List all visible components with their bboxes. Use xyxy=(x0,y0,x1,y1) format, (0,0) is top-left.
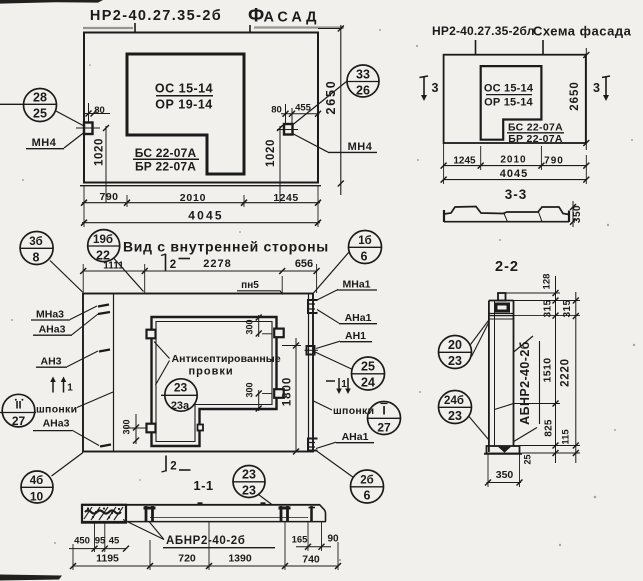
svg-text:1020: 1020 xyxy=(94,138,106,166)
svg-text:АН1: АН1 xyxy=(345,330,366,342)
svg-text:20: 20 xyxy=(448,338,462,352)
svg-text:23: 23 xyxy=(242,484,256,498)
svg-text:ОС 15-14: ОС 15-14 xyxy=(155,82,213,96)
svg-text:МНа1: МНа1 xyxy=(342,279,370,291)
svg-text:АНа3: АНа3 xyxy=(43,418,70,430)
svg-text:2б: 2б xyxy=(360,475,374,487)
svg-text:23: 23 xyxy=(448,354,462,368)
svg-text:23: 23 xyxy=(174,381,188,395)
svg-text:1111: 1111 xyxy=(103,261,124,272)
svg-text:АН3: АН3 xyxy=(40,356,61,368)
svg-text:6: 6 xyxy=(361,250,368,264)
svg-text:115: 115 xyxy=(561,429,572,445)
svg-text:АБНР2-40-2б: АБНР2-40-2б xyxy=(166,535,246,547)
svg-text:10: 10 xyxy=(30,490,44,504)
svg-text:I: I xyxy=(382,404,385,418)
svg-text:2010: 2010 xyxy=(180,192,207,204)
svg-text:6: 6 xyxy=(364,489,371,503)
svg-text:28: 28 xyxy=(33,91,47,105)
svg-text:АСАД: АСАД xyxy=(264,10,321,26)
svg-text:300: 300 xyxy=(245,319,255,334)
svg-text:3б: 3б xyxy=(29,236,43,248)
svg-text:2: 2 xyxy=(170,259,176,271)
svg-text:Ф: Ф xyxy=(248,6,264,27)
svg-text:МНа3: МНа3 xyxy=(36,309,64,321)
svg-text:90: 90 xyxy=(327,534,339,545)
svg-text:2278: 2278 xyxy=(203,258,231,270)
svg-text:300: 300 xyxy=(122,419,132,434)
svg-text:Схема фасада: Схема фасада xyxy=(533,24,632,39)
svg-text:4045: 4045 xyxy=(500,168,528,180)
svg-text:23: 23 xyxy=(242,468,256,482)
svg-text:25: 25 xyxy=(523,454,533,464)
svg-text:АНа3: АНа3 xyxy=(39,324,66,336)
svg-text:27: 27 xyxy=(12,414,26,428)
svg-text:740: 740 xyxy=(302,554,320,566)
svg-text:2650: 2650 xyxy=(569,81,581,111)
svg-text:ОС 15-14: ОС 15-14 xyxy=(484,83,534,95)
svg-text:2010: 2010 xyxy=(500,155,526,166)
svg-text:26: 26 xyxy=(356,84,370,98)
svg-text:1б: 1б xyxy=(358,235,372,247)
svg-text:БР 22-07А: БР 22-07А xyxy=(508,133,563,145)
svg-text:1: 1 xyxy=(67,383,73,394)
svg-text:АНа1: АНа1 xyxy=(345,312,372,324)
svg-text:1020: 1020 xyxy=(265,139,277,167)
svg-text:2650: 2650 xyxy=(324,79,338,114)
svg-text:790: 790 xyxy=(544,156,564,167)
svg-text:1-1: 1-1 xyxy=(193,478,213,493)
svg-text:450: 450 xyxy=(74,536,90,547)
svg-text:300: 300 xyxy=(245,382,255,397)
svg-text:1: 1 xyxy=(341,379,347,390)
svg-text:350: 350 xyxy=(572,205,583,223)
svg-text:8: 8 xyxy=(33,251,40,265)
svg-text:АНа1: АНа1 xyxy=(342,431,369,443)
svg-text:3: 3 xyxy=(593,81,600,95)
svg-text:3-3: 3-3 xyxy=(505,187,528,202)
svg-text:656: 656 xyxy=(295,258,313,270)
svg-text:790: 790 xyxy=(99,191,118,203)
svg-text:Вид с внутренней стороны: Вид с внутренней стороны xyxy=(123,239,329,255)
svg-text:шпонки: шпонки xyxy=(36,404,77,416)
svg-text:165: 165 xyxy=(292,535,309,546)
svg-text:25: 25 xyxy=(33,107,47,121)
svg-text:23а: 23а xyxy=(171,400,190,412)
svg-text:ОР 19-14: ОР 19-14 xyxy=(155,98,213,112)
svg-text:80: 80 xyxy=(271,105,282,116)
svg-text:БС 22-07А: БС 22-07А xyxy=(135,146,197,160)
svg-text:БР 22-07А: БР 22-07А xyxy=(135,160,196,174)
svg-text:1800: 1800 xyxy=(282,377,294,407)
svg-text:33: 33 xyxy=(356,68,370,82)
svg-text:128: 128 xyxy=(542,274,553,290)
svg-text:ОР 15-14: ОР 15-14 xyxy=(484,97,533,109)
svg-text:3: 3 xyxy=(432,81,439,95)
svg-text:2-2: 2-2 xyxy=(495,259,519,275)
svg-text:19б: 19б xyxy=(93,234,113,246)
svg-text:23: 23 xyxy=(448,409,462,423)
svg-text:315: 315 xyxy=(543,300,554,318)
svg-text:24: 24 xyxy=(361,376,375,390)
svg-text:4045: 4045 xyxy=(188,209,224,223)
svg-text:80: 80 xyxy=(94,105,105,116)
svg-text:720: 720 xyxy=(178,553,196,565)
svg-text:4б: 4б xyxy=(30,475,44,487)
svg-text:НР2-40.27.35-2бл: НР2-40.27.35-2бл xyxy=(432,24,535,38)
svg-text:НР2-40.27.35-2б: НР2-40.27.35-2б xyxy=(90,8,222,24)
svg-text:95: 95 xyxy=(95,536,106,547)
svg-text:1510: 1510 xyxy=(542,358,554,383)
svg-text:1390: 1390 xyxy=(228,553,252,565)
svg-text:БС 22-07А: БС 22-07А xyxy=(508,122,563,134)
svg-text:1245: 1245 xyxy=(273,192,298,204)
svg-text:2220: 2220 xyxy=(560,358,572,387)
svg-text:825: 825 xyxy=(544,419,555,437)
svg-text:II: II xyxy=(15,400,21,412)
svg-text:2: 2 xyxy=(170,461,176,473)
svg-text:Антисептированные: Антисептированные xyxy=(172,353,281,365)
svg-text:45: 45 xyxy=(109,536,120,547)
svg-text:МН4: МН4 xyxy=(348,141,373,153)
svg-text:провки: провки xyxy=(189,366,234,378)
svg-text:350: 350 xyxy=(496,469,514,481)
svg-text:1195: 1195 xyxy=(96,553,119,565)
svg-text:пн5: пн5 xyxy=(241,280,259,291)
svg-text:27: 27 xyxy=(377,421,391,435)
svg-text:24б: 24б xyxy=(444,395,464,407)
svg-text:25: 25 xyxy=(361,360,375,374)
svg-text:МН4: МН4 xyxy=(32,137,57,149)
svg-text:315: 315 xyxy=(562,300,573,318)
svg-text:1245: 1245 xyxy=(453,156,476,167)
svg-text:АБНР2-40-2б: АБНР2-40-2б xyxy=(518,341,532,425)
